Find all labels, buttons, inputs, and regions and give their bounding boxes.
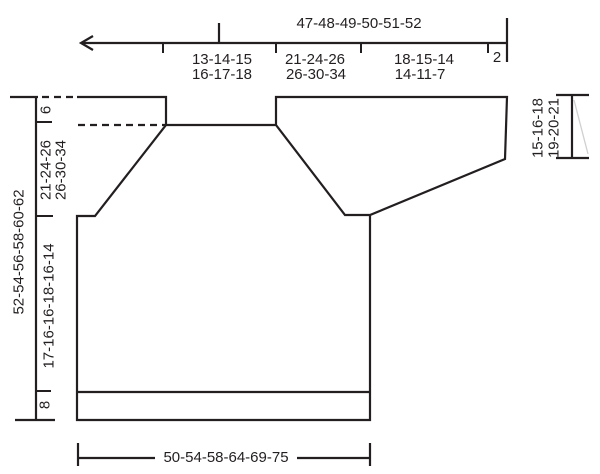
- schematic-canvas: 47-48-49-50-51-52 13-14-15 16-17-18 21-2…: [0, 0, 600, 474]
- neck-width-label2: 26-30-34: [286, 66, 346, 83]
- cuff-leader-line: [574, 100, 588, 154]
- shoulder-width-label2: 16-17-18: [192, 66, 252, 83]
- top-width-ruler: 47-48-49-50-51-52 13-14-15 16-17-18 21-2…: [81, 15, 507, 83]
- cuff-width-label2: 19-20-21: [546, 98, 563, 158]
- bottom-width-label: 50-54-58-64-69-75: [163, 449, 288, 466]
- total-width-label: 47-48-49-50-51-52: [296, 15, 421, 32]
- cuff-width-label: 15-16-18: [530, 98, 547, 158]
- knitting-schematic: 47-48-49-50-51-52 13-14-15 16-17-18 21-2…: [0, 0, 600, 474]
- neck-depth-label: 6: [38, 106, 55, 114]
- total-length-label: 52-54-56-58-60-62: [11, 189, 28, 314]
- yoke-depth-label2: 26-30-34: [53, 140, 70, 200]
- edge-width-label: 2: [493, 49, 501, 66]
- bottom-width-ruler: 50-54-58-64-69-75: [78, 443, 370, 466]
- sleeve-top-width-label2: 14-11-7: [395, 66, 446, 83]
- left-length-ruler: 52-54-56-58-60-62 6 21-24-26 26-30-34 17…: [10, 97, 70, 420]
- garment-body-outline: [77, 125, 370, 420]
- body-length-label: 17-16-16-18-16-14: [41, 243, 58, 368]
- rib-height-label: 8: [37, 401, 54, 409]
- garment-outline: [42, 97, 507, 420]
- right-cuff-ruler: 15-16-18 19-20-21: [530, 95, 590, 158]
